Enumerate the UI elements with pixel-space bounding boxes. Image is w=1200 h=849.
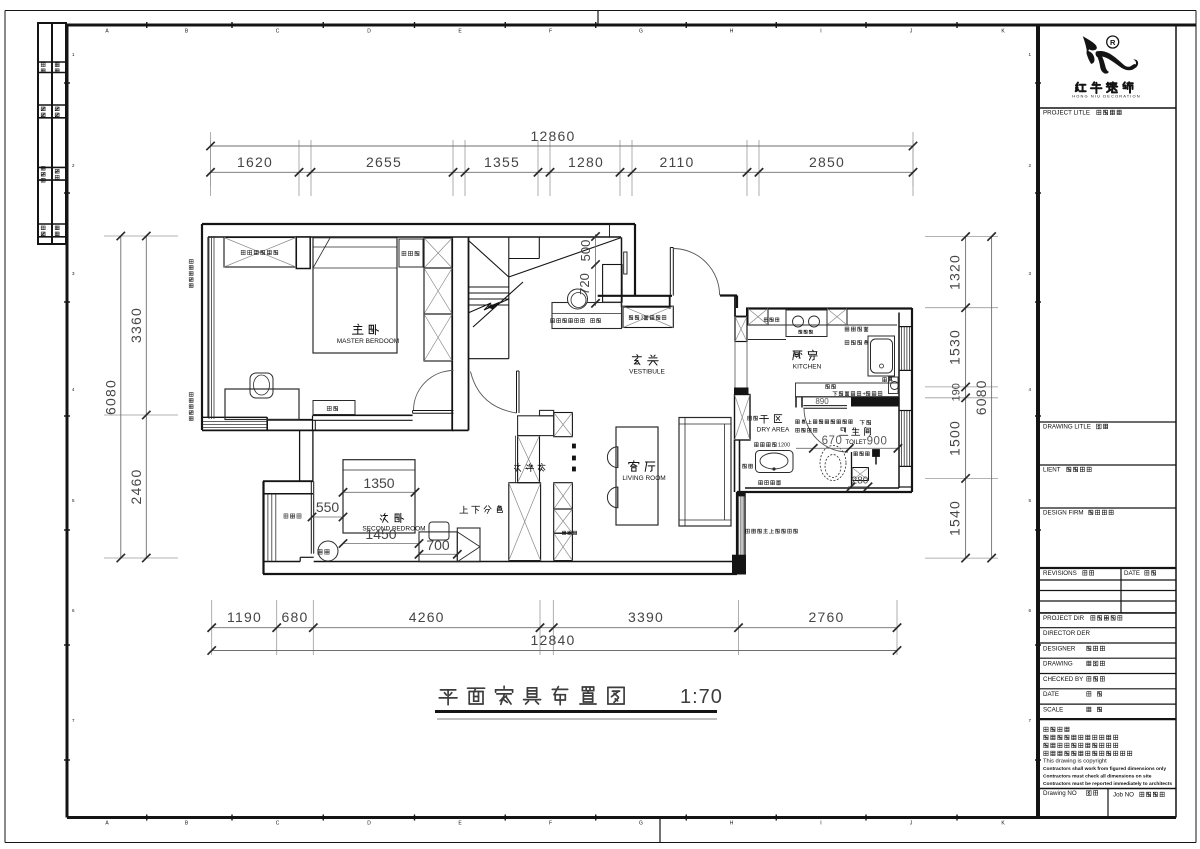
svg-text:2460: 2460 (128, 469, 144, 505)
svg-text:700: 700 (426, 537, 450, 553)
svg-text:3360: 3360 (128, 307, 144, 343)
svg-text:DRY AREA: DRY AREA (757, 427, 790, 434)
svg-text:1450: 1450 (365, 526, 396, 542)
svg-text:PROJECT DIR: PROJECT DIR (1043, 615, 1085, 622)
svg-text:12860: 12860 (531, 128, 576, 144)
svg-text:550: 550 (316, 499, 340, 515)
svg-text:12840: 12840 (531, 632, 576, 648)
svg-text:1500: 1500 (947, 420, 963, 456)
svg-text:Drawing NO: Drawing NO (1043, 790, 1077, 797)
svg-text:280: 280 (852, 476, 869, 487)
svg-text:3390: 3390 (628, 609, 664, 625)
svg-text:3: 3 (641, 316, 644, 322)
svg-text:2655: 2655 (366, 154, 402, 170)
svg-text:1530: 1530 (947, 329, 963, 365)
svg-text:G: G (639, 821, 643, 827)
svg-text:1:70: 1:70 (680, 686, 723, 708)
svg-text:6080: 6080 (103, 379, 119, 415)
svg-text:1190: 1190 (227, 609, 262, 625)
svg-text:1620: 1620 (237, 154, 273, 170)
svg-text:190: 190 (951, 383, 963, 401)
svg-text:SCALE: SCALE (1043, 707, 1063, 714)
svg-text:CHECKED BY: CHECKED BY (1043, 676, 1083, 683)
svg-text:680: 680 (282, 609, 309, 625)
svg-text:I: I (820, 29, 821, 35)
svg-text:D: D (367, 29, 371, 35)
svg-text:900: 900 (867, 436, 888, 448)
svg-text:I: I (820, 821, 821, 827)
svg-text:Contractors must be reported i: Contractors must be reported immediately… (1043, 781, 1172, 787)
svg-text:This drawing is copyright: This drawing is copyright (1043, 759, 1107, 765)
svg-text:DATE: DATE (1124, 570, 1140, 577)
svg-text:R: R (1110, 38, 1116, 47)
svg-text:C: C (276, 29, 280, 35)
svg-text:1355: 1355 (484, 154, 520, 170)
svg-text:2850: 2850 (809, 154, 845, 170)
svg-text:DIRECTOR DER: DIRECTOR DER (1043, 630, 1091, 637)
svg-text:LIENT: LIENT (1043, 467, 1061, 474)
svg-text:PROJECT LITLE: PROJECT LITLE (1043, 110, 1090, 117)
svg-text:2760: 2760 (809, 609, 845, 625)
svg-text:720: 720 (577, 273, 592, 295)
svg-text:DESIGNER: DESIGNER (1043, 646, 1076, 653)
svg-text:1350: 1350 (363, 475, 394, 491)
svg-text:1320: 1320 (947, 254, 963, 290)
svg-text:F: F (549, 29, 552, 35)
svg-text:DRAWING: DRAWING (1043, 661, 1073, 668)
svg-text:C: C (276, 821, 280, 827)
svg-text:D: D (367, 821, 371, 827)
svg-text:500: 500 (578, 240, 593, 262)
svg-text:1540: 1540 (947, 500, 963, 536)
svg-text:1280: 1280 (568, 154, 604, 170)
svg-text:MASTER BERDOOM: MASTER BERDOOM (337, 338, 399, 345)
svg-text:DRAWING LITLE: DRAWING LITLE (1043, 424, 1091, 431)
svg-text:KITCHEN: KITCHEN (793, 364, 822, 371)
svg-text:4260: 4260 (409, 609, 445, 625)
svg-text:+: + (863, 392, 866, 398)
svg-text:LIVING ROOM: LIVING ROOM (622, 475, 665, 482)
svg-text:670: 670 (822, 435, 843, 447)
svg-text:DATE: DATE (1043, 691, 1059, 698)
svg-text:HONG NIU DECORATION: HONG NIU DECORATION (1072, 94, 1140, 99)
svg-text:H: H (730, 821, 734, 827)
svg-text:890: 890 (815, 397, 829, 406)
svg-text:1200: 1200 (778, 443, 790, 449)
svg-text:G: G (639, 29, 643, 35)
svg-text:Job NO: Job NO (1113, 792, 1134, 799)
svg-text:DESIGN FIRM: DESIGN FIRM (1043, 510, 1084, 517)
svg-text:2110: 2110 (660, 154, 695, 170)
svg-text:Contractors shall work from fi: Contractors shall work from figured dime… (1043, 766, 1166, 772)
svg-text:Contractors must check all dim: Contractors must check all dimensions on… (1043, 774, 1152, 780)
svg-text:VESTIBULE: VESTIBULE (629, 369, 665, 376)
svg-text:6080: 6080 (973, 379, 989, 415)
svg-text:TOILET: TOILET (846, 440, 867, 446)
svg-text:H: H (730, 29, 734, 35)
svg-text:REVISIONS: REVISIONS (1043, 570, 1077, 577)
svg-text:F: F (549, 821, 552, 827)
